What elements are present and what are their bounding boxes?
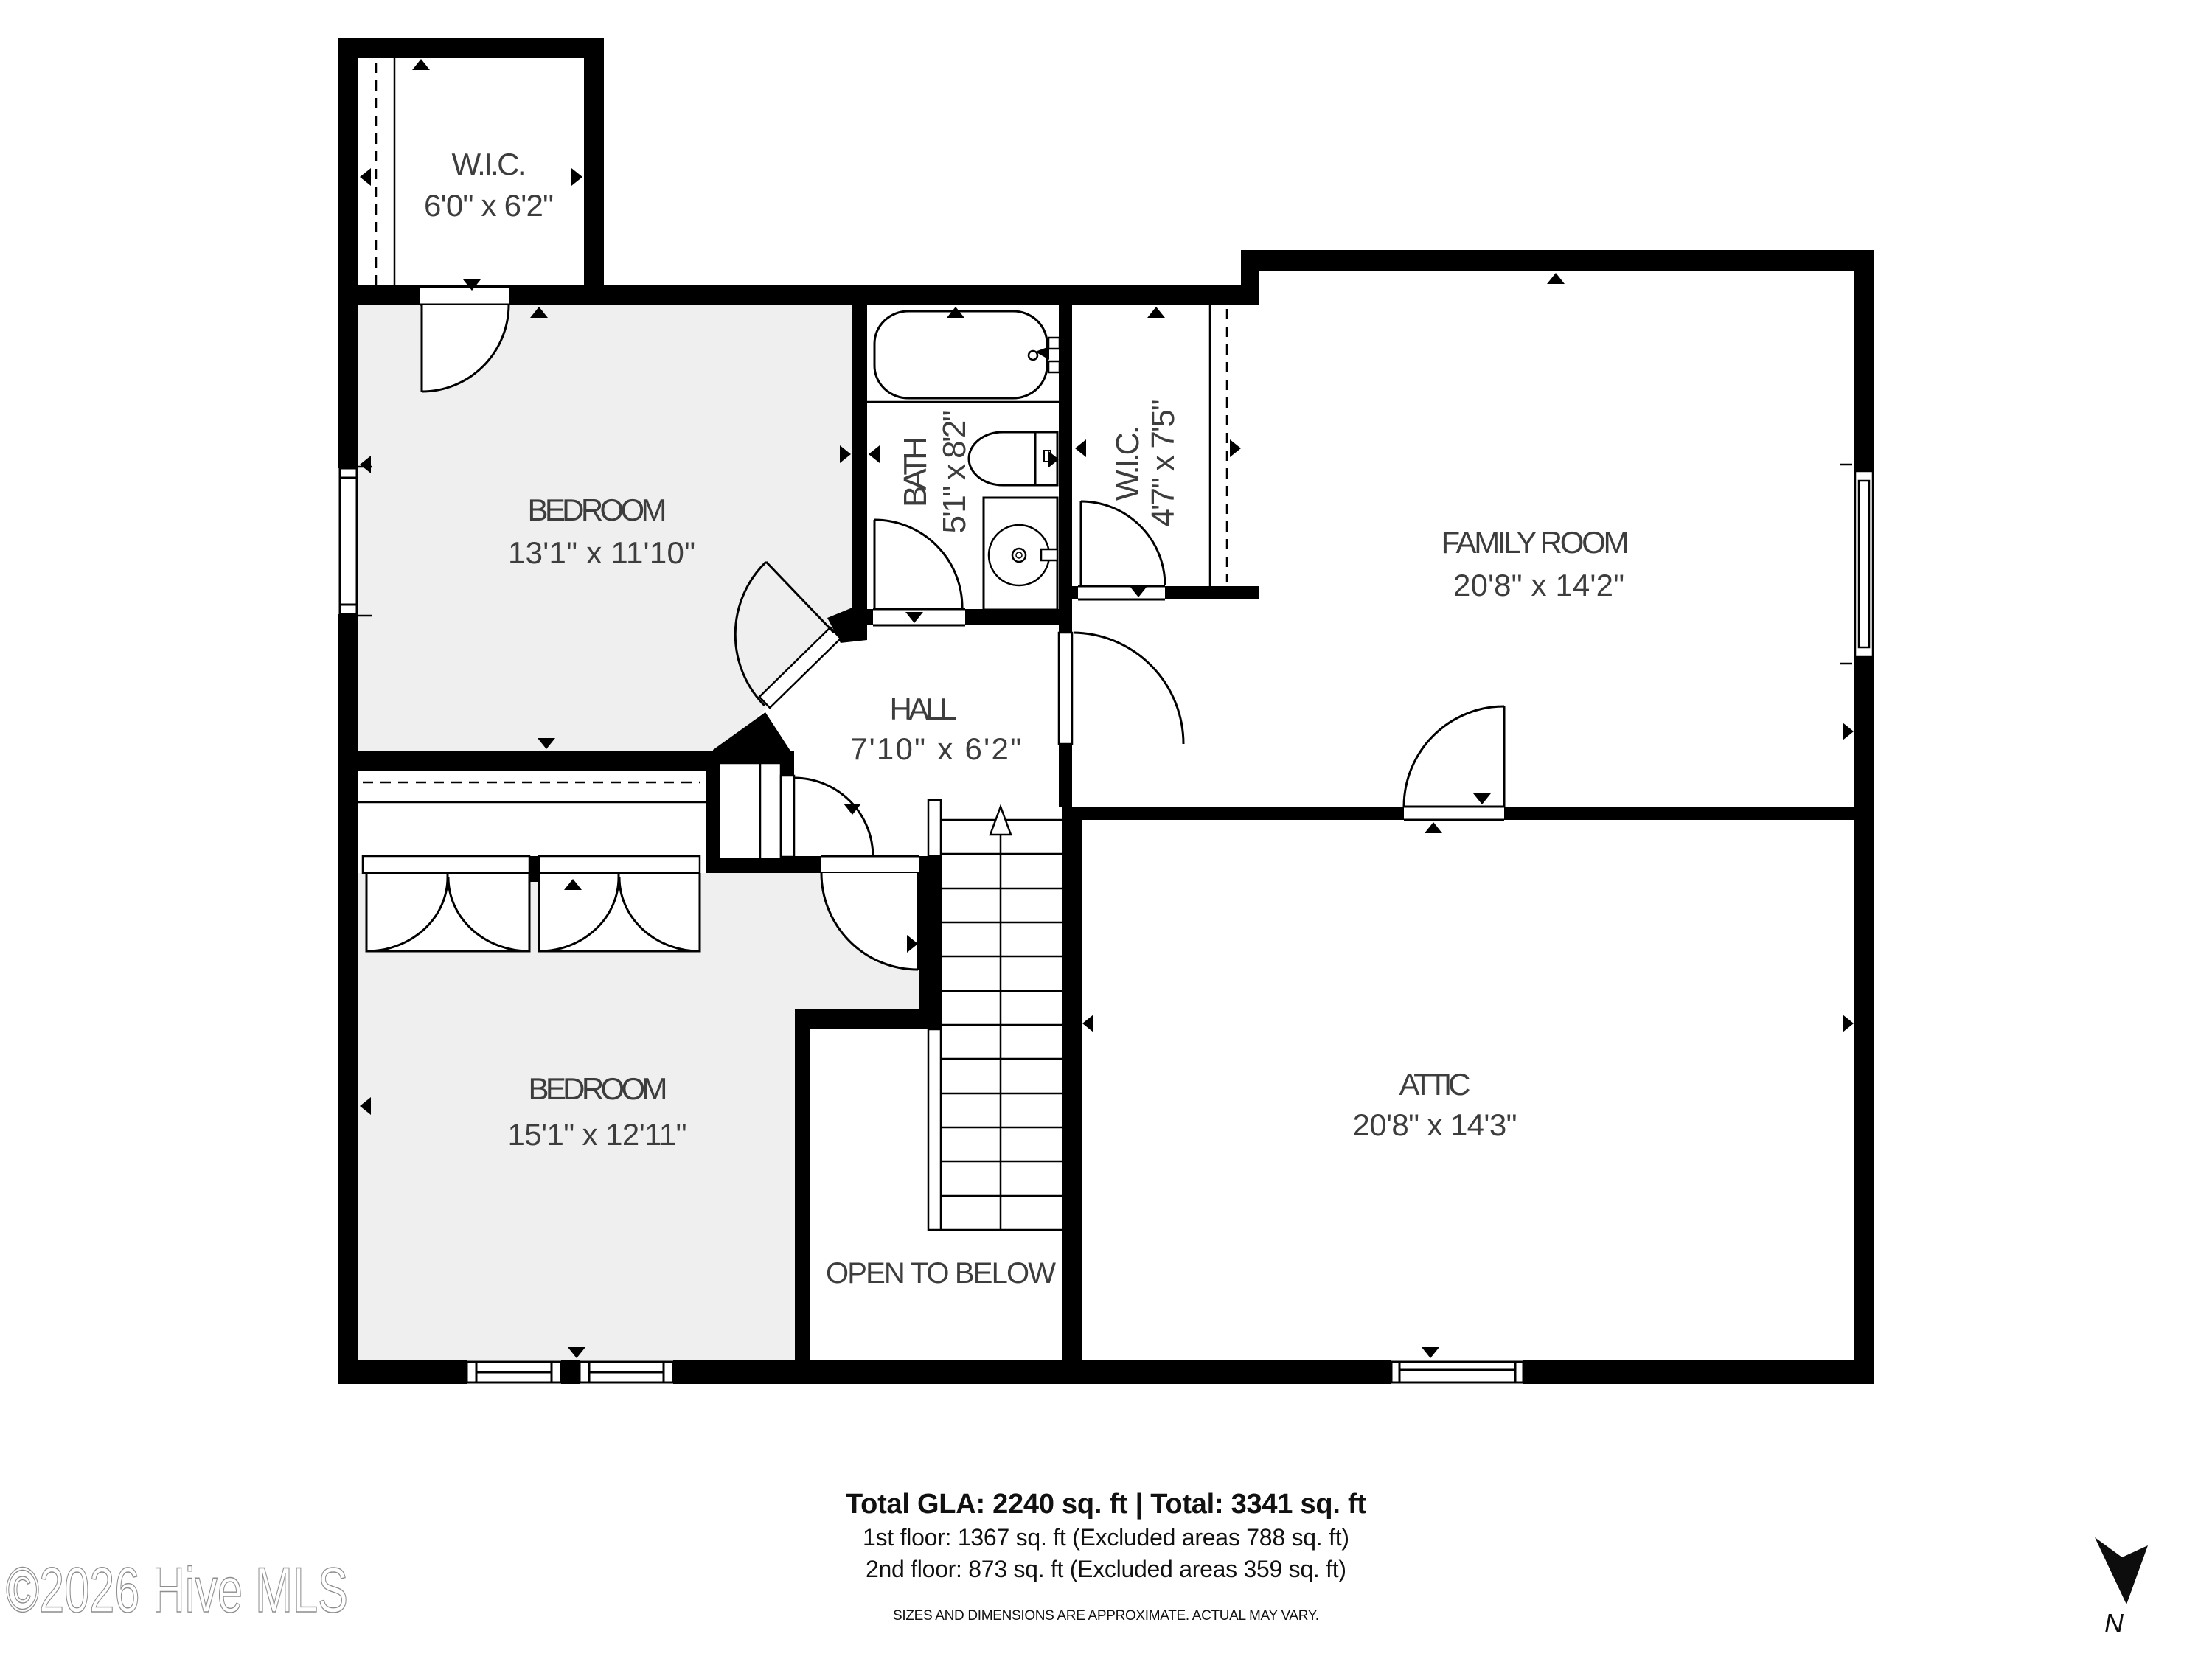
svg-text:HALL: HALL <box>890 692 957 726</box>
svg-text:W.I.C.: W.I.C. <box>1110 425 1146 501</box>
svg-text:BATH: BATH <box>897 437 933 507</box>
svg-text:N: N <box>2104 1608 2124 1638</box>
svg-text:13'1" x 11'10": 13'1" x 11'10" <box>508 535 695 570</box>
svg-text:Total GLA: 2240 sq. ft | Total: Total GLA: 2240 sq. ft | Total: 3341 sq.… <box>846 1489 1366 1520</box>
svg-text:2nd floor: 873 sq. ft (Exclude: 2nd floor: 873 sq. ft (Excluded areas 35… <box>866 1556 1346 1582</box>
svg-text:5'1" x 8'2": 5'1" x 8'2" <box>936 411 973 534</box>
svg-text:BEDROOM: BEDROOM <box>528 493 667 527</box>
svg-text:4'7" x 7'5": 4'7" x 7'5" <box>1145 400 1181 527</box>
svg-text:BEDROOM: BEDROOM <box>529 1071 668 1106</box>
svg-text:FAMILY ROOM: FAMILY ROOM <box>1441 525 1630 560</box>
svg-text:OPEN TO BELOW: OPEN TO BELOW <box>826 1257 1056 1290</box>
svg-text:ATTIC: ATTIC <box>1399 1067 1471 1102</box>
svg-text:SIZES AND DIMENSIONS ARE APPRO: SIZES AND DIMENSIONS ARE APPROXIMATE. AC… <box>893 1608 1319 1624</box>
svg-text:1st floor: 1367 sq. ft (Exclud: 1st floor: 1367 sq. ft (Excluded areas 7… <box>863 1524 1349 1551</box>
svg-text:©2026 Hive MLS: ©2026 Hive MLS <box>6 1555 348 1626</box>
svg-text:15'1" x 12'11": 15'1" x 12'11" <box>508 1117 687 1152</box>
svg-text:6'0" x 6'2": 6'0" x 6'2" <box>424 188 554 223</box>
svg-text:20'8" x 14'2": 20'8" x 14'2" <box>1453 568 1624 602</box>
svg-text:20'8" x 14'3": 20'8" x 14'3" <box>1353 1107 1517 1142</box>
svg-text:W.I.C.: W.I.C. <box>452 147 526 181</box>
